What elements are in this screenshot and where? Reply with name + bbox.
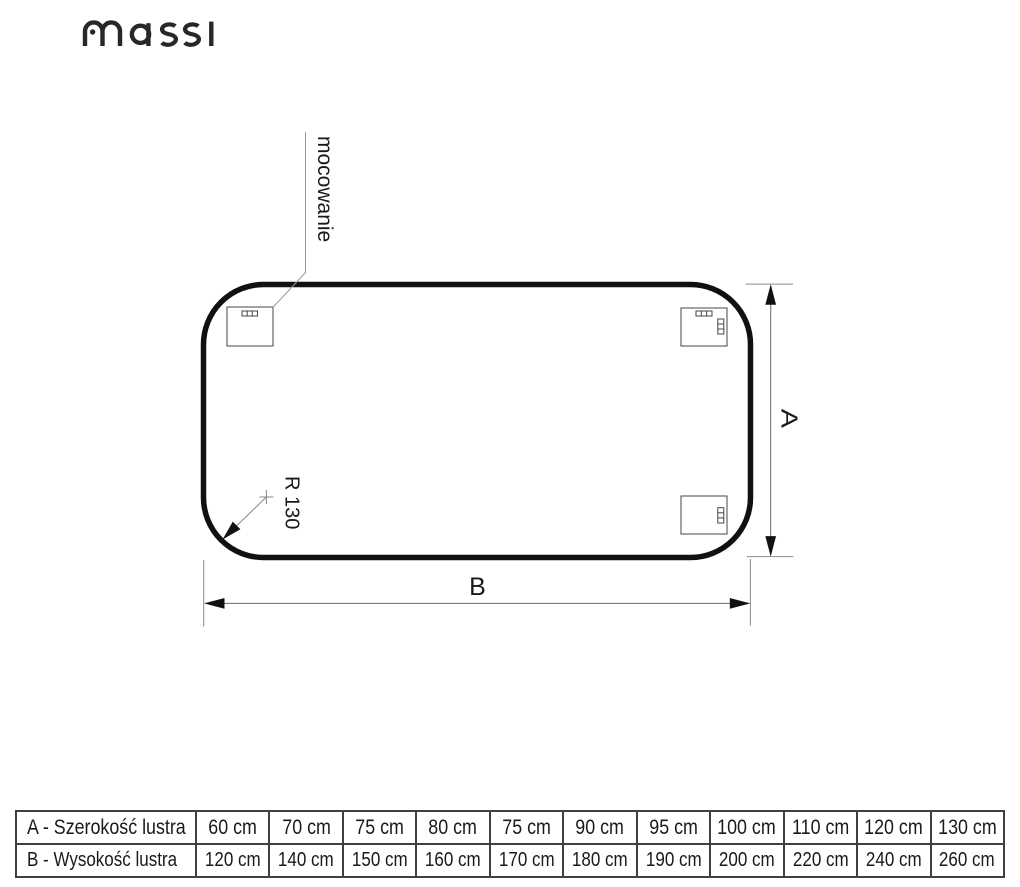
svg-text:R 130: R 130 <box>281 476 303 529</box>
svg-text:A: A <box>776 409 803 429</box>
svg-text:mocowanie: mocowanie <box>313 136 336 242</box>
svg-text:B: B <box>469 573 486 601</box>
